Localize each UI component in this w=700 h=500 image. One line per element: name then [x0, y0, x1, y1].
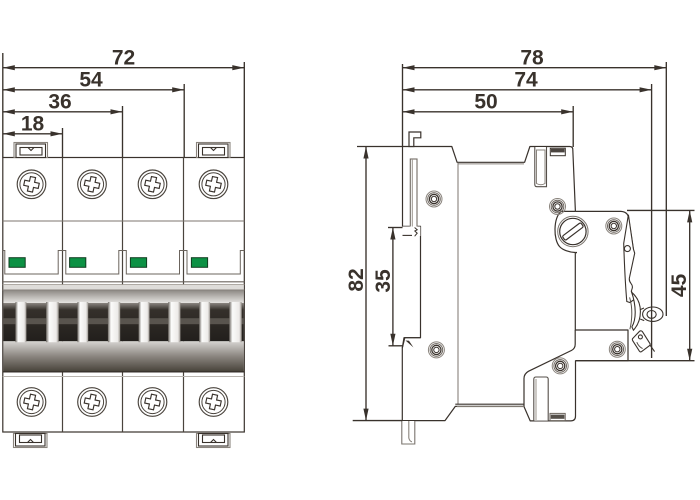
svg-text:82: 82 [345, 268, 368, 291]
svg-text:45: 45 [668, 274, 691, 298]
svg-text:18: 18 [21, 113, 45, 136]
svg-text:36: 36 [48, 91, 71, 114]
svg-text:54: 54 [79, 69, 103, 92]
svg-text:35: 35 [372, 269, 395, 293]
svg-text:78: 78 [520, 47, 544, 70]
svg-text:74: 74 [514, 69, 538, 92]
svg-text:72: 72 [112, 47, 135, 70]
svg-text:50: 50 [474, 91, 497, 114]
